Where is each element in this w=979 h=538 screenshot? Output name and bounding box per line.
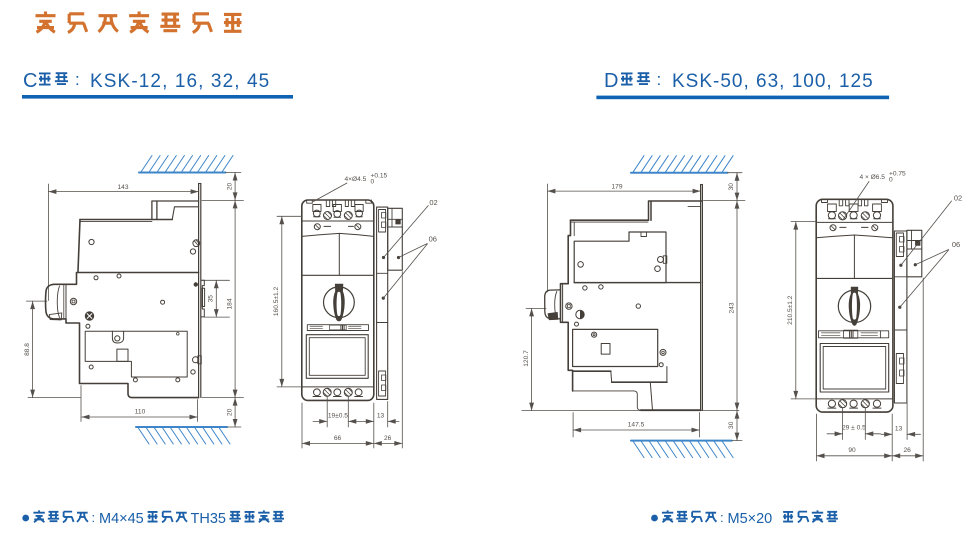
svg-text:4×Ø4.5: 4×Ø4.5 <box>345 176 367 183</box>
svg-text:06: 06 <box>429 235 437 244</box>
svg-text:30: 30 <box>728 183 735 191</box>
svg-text:M5×20: M5×20 <box>728 511 773 527</box>
svg-text:29 ± 0.5: 29 ± 0.5 <box>842 425 866 432</box>
svg-text:C: C <box>23 70 37 92</box>
svg-text::: : <box>720 510 724 525</box>
svg-text:06: 06 <box>952 240 960 249</box>
svg-text:KSK-50, 63, 100, 125: KSK-50, 63, 100, 125 <box>672 71 874 92</box>
svg-text:30: 30 <box>728 421 735 429</box>
svg-text:02: 02 <box>954 194 962 203</box>
svg-text:66: 66 <box>334 435 342 442</box>
svg-text:KSK-12, 16, 32, 45: KSK-12, 16, 32, 45 <box>90 71 270 92</box>
svg-text:243: 243 <box>728 302 735 313</box>
svg-text:110: 110 <box>135 409 146 416</box>
svg-text:143: 143 <box>117 184 128 191</box>
svg-text:26: 26 <box>384 435 392 442</box>
svg-text:160.5±1.2: 160.5±1.2 <box>273 287 280 317</box>
svg-text:88.8: 88.8 <box>24 343 31 356</box>
svg-text:0: 0 <box>889 177 893 184</box>
svg-text:210.5±1.2: 210.5±1.2 <box>787 295 794 325</box>
svg-text:179: 179 <box>611 184 622 191</box>
svg-text::: : <box>92 510 96 525</box>
svg-text:4 × Ø6.5: 4 × Ø6.5 <box>860 174 886 181</box>
svg-text:147.5: 147.5 <box>628 422 645 429</box>
svg-text:19±0.5: 19±0.5 <box>328 413 348 420</box>
svg-text:20: 20 <box>227 183 234 191</box>
svg-text:20: 20 <box>227 408 234 416</box>
svg-text:184: 184 <box>227 298 234 309</box>
svg-text:0: 0 <box>371 179 375 186</box>
svg-text::: : <box>75 70 80 89</box>
svg-text:13: 13 <box>377 413 385 420</box>
svg-text:M4×45: M4×45 <box>99 511 144 527</box>
svg-text:13: 13 <box>895 425 903 432</box>
svg-text:D: D <box>604 70 618 92</box>
svg-text:90: 90 <box>848 447 856 454</box>
svg-text:TH35: TH35 <box>191 511 226 527</box>
svg-text::: : <box>657 70 662 89</box>
svg-text:120.7: 120.7 <box>523 350 530 367</box>
svg-text:02: 02 <box>429 198 437 207</box>
svg-text:26: 26 <box>904 447 912 454</box>
svg-text:35: 35 <box>208 295 215 303</box>
